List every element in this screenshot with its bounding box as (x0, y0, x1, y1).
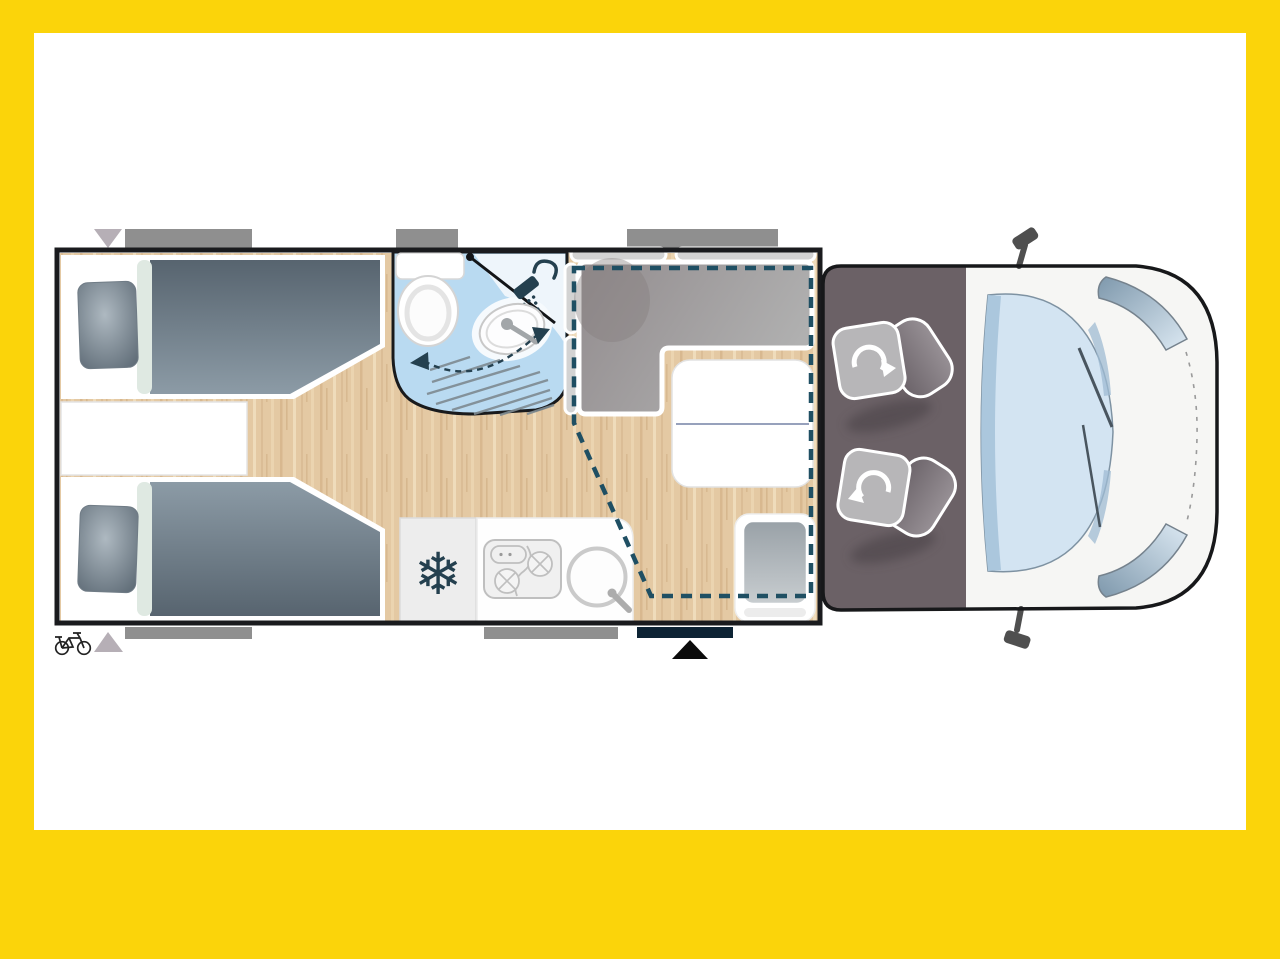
entry-door (637, 627, 733, 638)
pillow (78, 281, 139, 369)
toilet-seat (407, 287, 449, 339)
sofa-shading (574, 258, 650, 342)
dealer-listing-image: ❄ (0, 0, 1280, 959)
bathroom (393, 252, 567, 415)
pillow (78, 505, 139, 593)
window-bar (125, 229, 252, 248)
motorhome-floorplan: ❄ (0, 0, 1280, 959)
nightstand (61, 402, 247, 475)
stove (484, 540, 561, 598)
swivel-wall-hinge (466, 253, 474, 261)
rear-arrow-icon (94, 632, 123, 652)
window-bar (484, 627, 618, 639)
faucet-base (501, 318, 513, 330)
wing-mirror (1003, 609, 1032, 650)
snowflake-icon: ❄ (414, 540, 463, 608)
cab (823, 226, 1217, 650)
kitchen: ❄ (400, 518, 633, 624)
window-bar (125, 627, 252, 639)
bicycle-icon (55, 633, 90, 654)
bed-sheet (137, 260, 152, 394)
entry-arrow-icon (672, 640, 708, 659)
window-bar (396, 229, 458, 248)
windshield (981, 294, 1113, 572)
window-bar (627, 229, 778, 248)
bed-sheet (137, 482, 152, 616)
rear-arrow-icon (94, 229, 122, 248)
dealer-footer: GmbH REISEMOBILE Mobile Freizeit genieße… (0, 830, 1280, 959)
side-seat (735, 514, 815, 622)
wing-mirror (1011, 226, 1040, 266)
